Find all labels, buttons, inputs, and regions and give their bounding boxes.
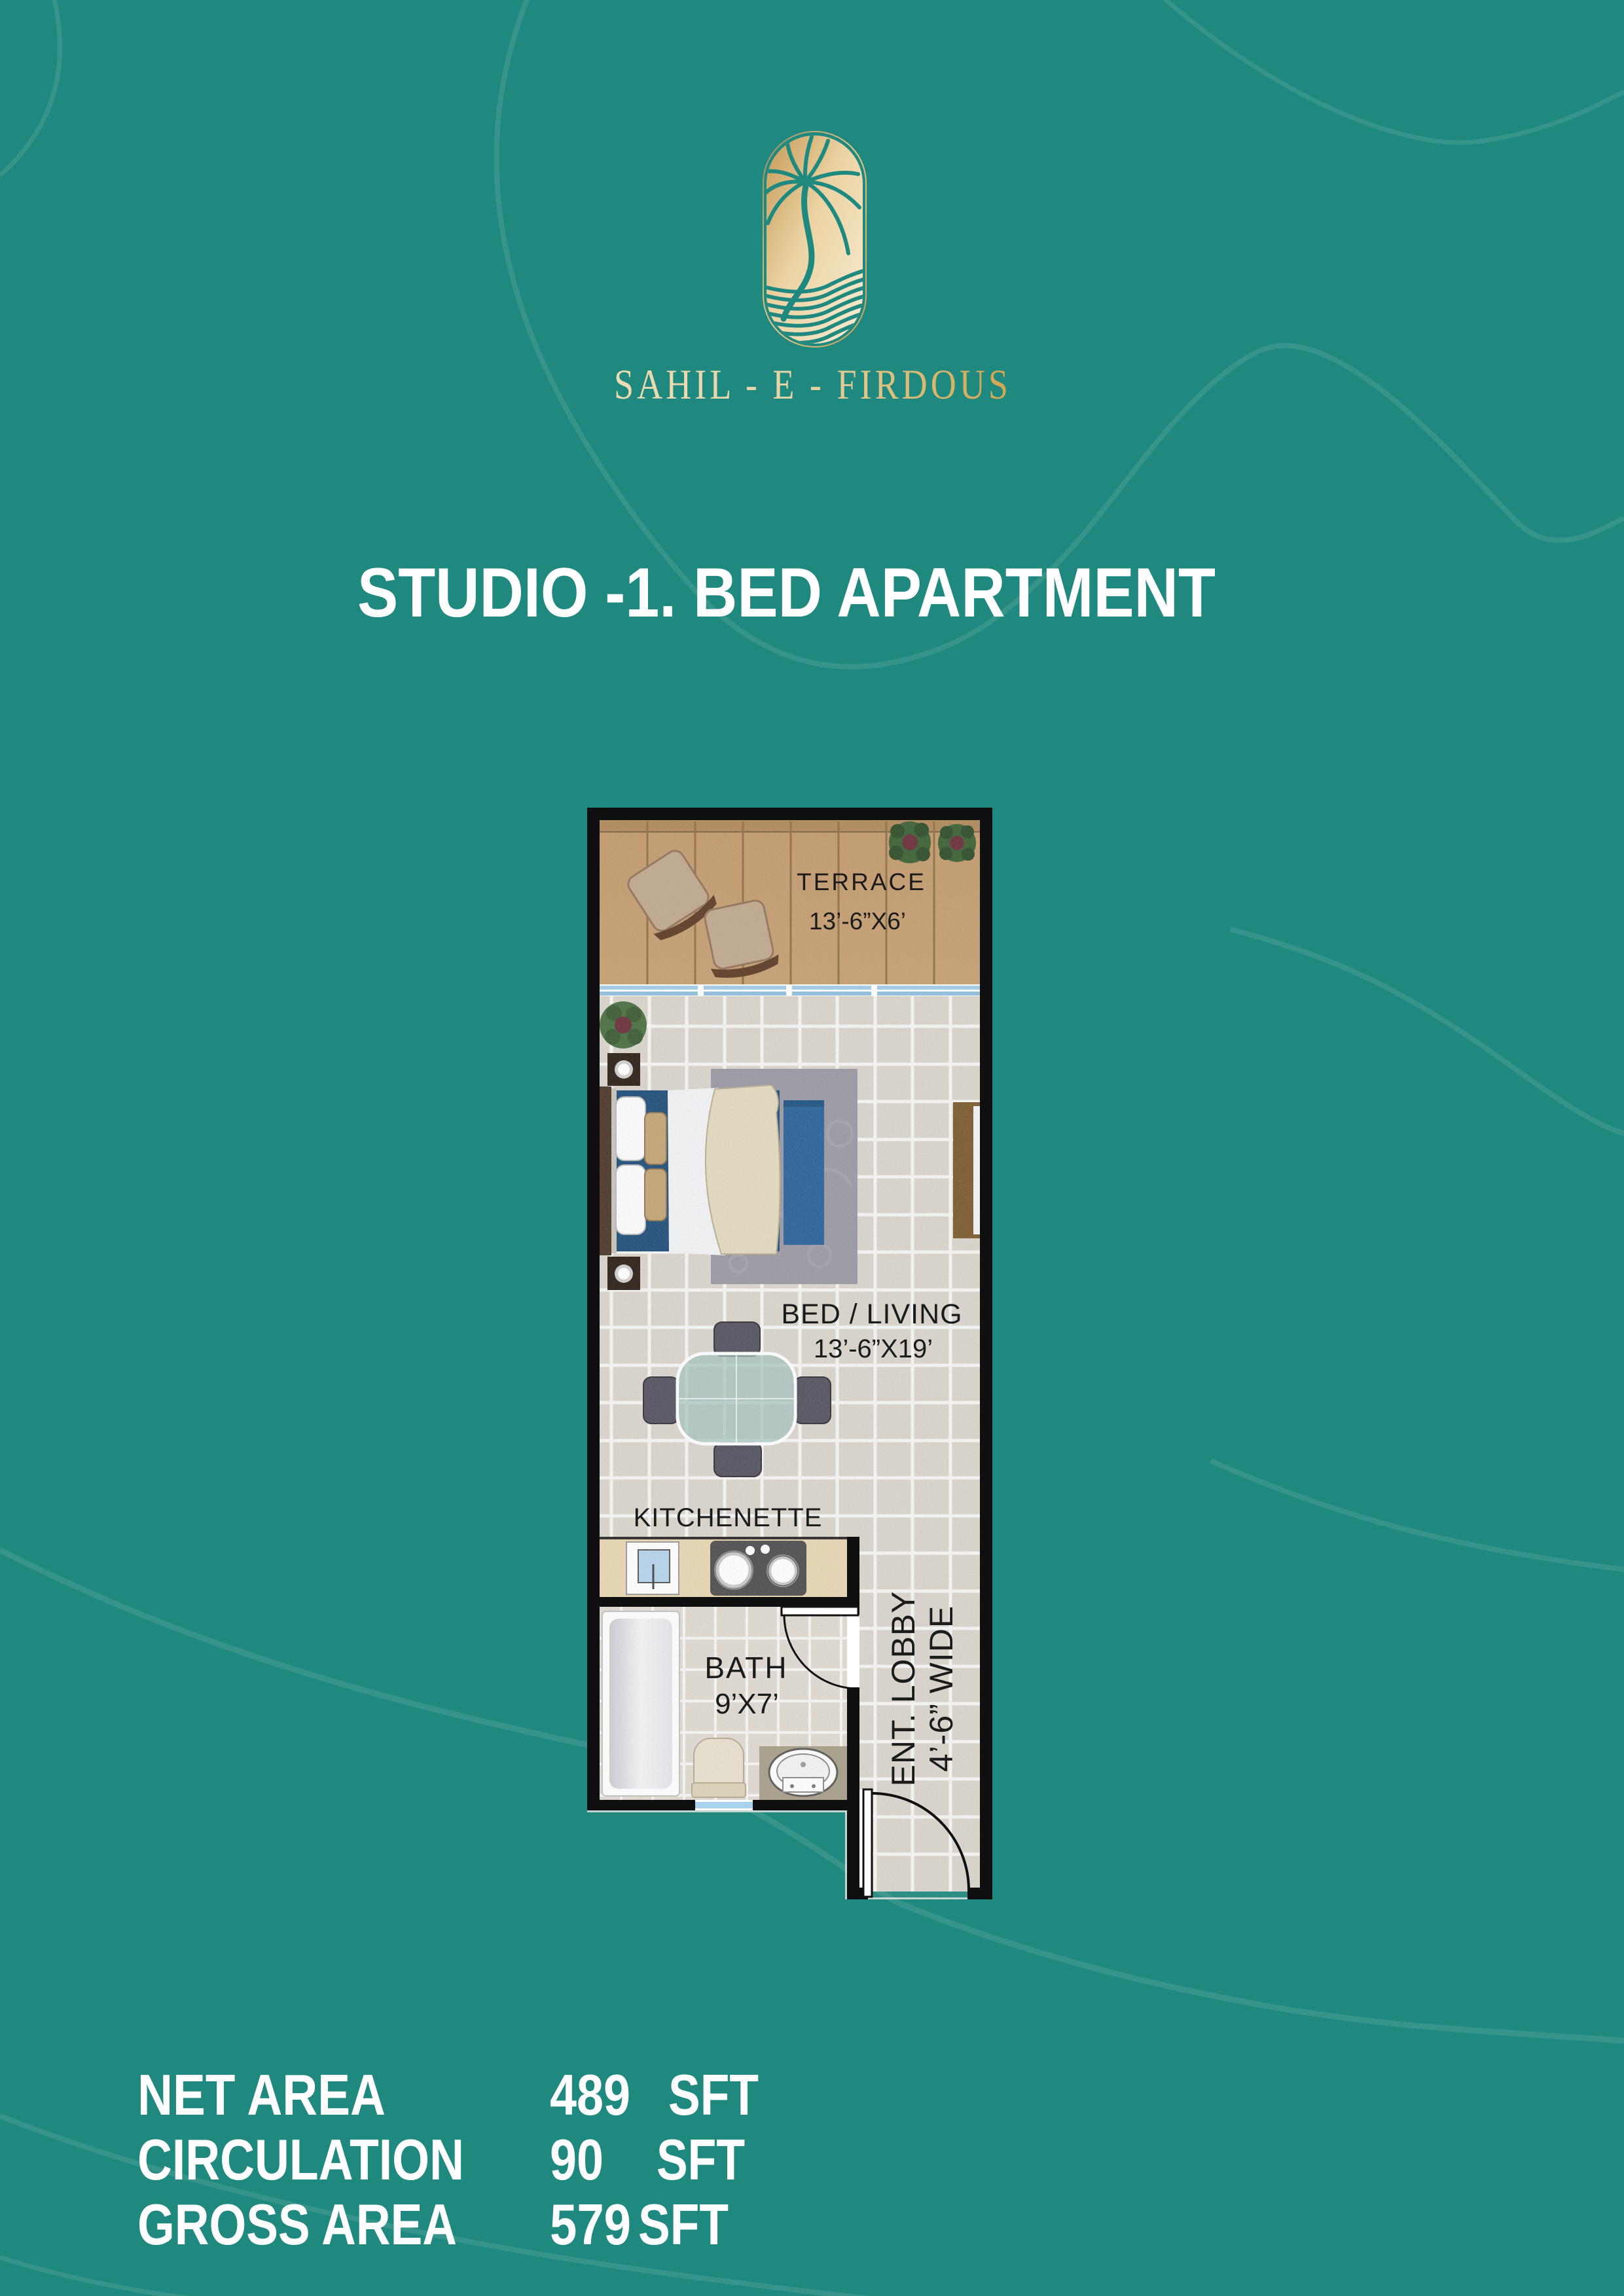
- svg-text:TERRACE: TERRACE: [797, 869, 926, 895]
- svg-text:STUDIO -1. BED APARTMENT: STUDIO -1. BED APARTMENT: [357, 553, 1216, 632]
- svg-text:SAHIL - E - FIRDOUS: SAHIL - E - FIRDOUS: [614, 361, 1011, 408]
- svg-text:BED / LIVING: BED / LIVING: [781, 1299, 962, 1330]
- svg-text:ENT. LOBBY: ENT. LOBBY: [885, 1591, 922, 1787]
- svg-text:489: 489: [550, 2062, 630, 2127]
- svg-text:SFT: SFT: [657, 2127, 745, 2192]
- svg-text:NET AREA: NET AREA: [137, 2062, 386, 2127]
- svg-text:GROSS AREA: GROSS AREA: [137, 2192, 457, 2257]
- svg-text:90: 90: [550, 2127, 604, 2192]
- svg-text:9’X7’: 9’X7’: [715, 1688, 779, 1720]
- svg-text:CIRCULATION: CIRCULATION: [137, 2127, 464, 2192]
- svg-text:BATH: BATH: [704, 1651, 787, 1685]
- svg-text:KITCHENETTE: KITCHENETTE: [634, 1503, 823, 1532]
- svg-text:13’-6”X6’: 13’-6”X6’: [809, 908, 906, 935]
- svg-text:SFT: SFT: [668, 2062, 759, 2127]
- svg-text:4’-6” WIDE: 4’-6” WIDE: [923, 1605, 960, 1772]
- svg-text:579: 579: [550, 2192, 631, 2257]
- svg-text:SFT: SFT: [638, 2192, 729, 2257]
- svg-text:13’-6”X19’: 13’-6”X19’: [814, 1335, 933, 1363]
